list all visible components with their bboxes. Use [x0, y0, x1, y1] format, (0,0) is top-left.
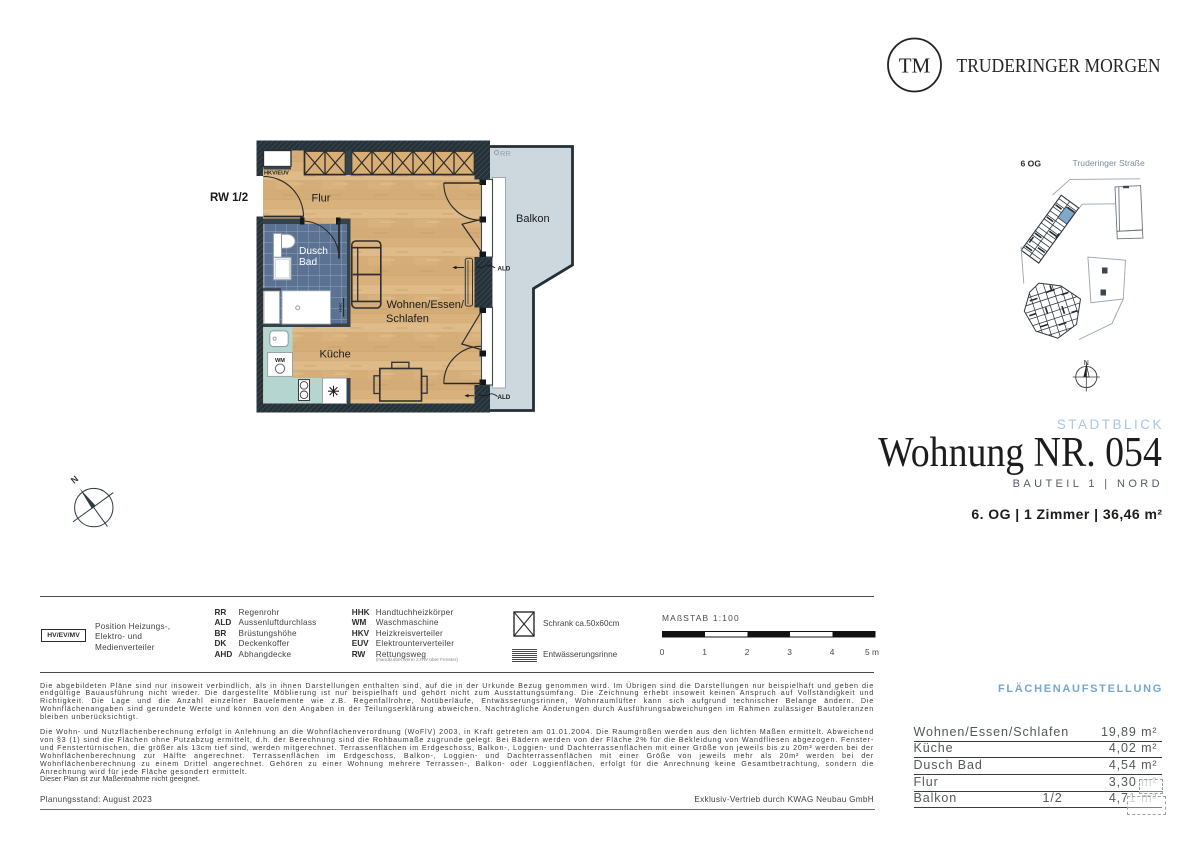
svg-text:RW 1/2: RW 1/2 [210, 192, 248, 204]
svg-text:Truderinger Straße: Truderinger Straße [1073, 158, 1145, 168]
svg-text:Balkon: Balkon [516, 213, 550, 225]
svg-text:WM: WM [275, 358, 285, 364]
svg-text:N: N [69, 474, 80, 486]
svg-text:Dusch: Dusch [299, 246, 328, 257]
svg-text:Schlafen: Schlafen [386, 313, 429, 325]
svg-text:HKV/EUV: HKV/EUV [264, 171, 289, 177]
svg-text:Küche: Küche [320, 349, 351, 361]
svg-text:Wohnen/Essen/: Wohnen/Essen/ [387, 299, 465, 311]
svg-text:TM: TM [899, 54, 931, 78]
svg-text:Bad: Bad [299, 257, 317, 268]
svg-text:Flur: Flur [312, 193, 331, 205]
svg-text:ALD: ALD [498, 394, 511, 401]
svg-text:RR: RR [500, 149, 511, 158]
svg-text:6 OG: 6 OG [1021, 159, 1042, 169]
svg-text:HHK: HHK [338, 303, 343, 312]
svg-text:TRUDERINGER MORGEN: TRUDERINGER MORGEN [957, 55, 1161, 77]
svg-text:ALD: ALD [498, 266, 511, 273]
